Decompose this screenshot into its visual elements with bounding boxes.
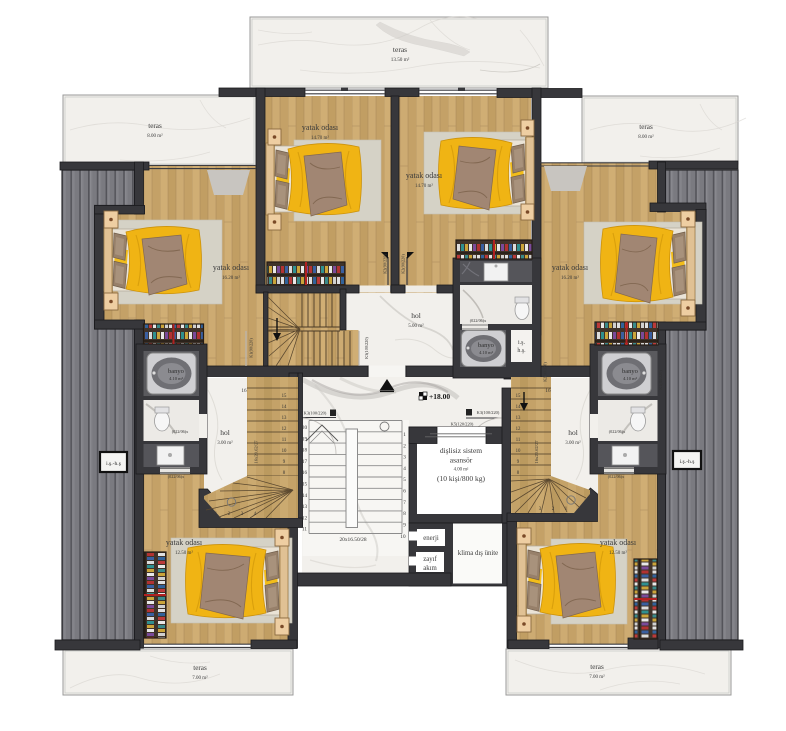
svg-text:3: 3 xyxy=(403,455,406,461)
svg-text:9: 9 xyxy=(403,522,406,528)
svg-text:K3(100/220): K3(100/220) xyxy=(304,411,327,416)
svg-text:+18.00: +18.00 xyxy=(429,392,450,401)
svg-text:dişlisiz sistem: dişlisiz sistem xyxy=(440,446,482,455)
svg-text:15: 15 xyxy=(516,394,521,399)
svg-text:K3(100/220): K3(100/220) xyxy=(477,410,500,415)
svg-text:12: 12 xyxy=(282,427,287,432)
svg-text:18: 18 xyxy=(302,448,308,454)
svg-text:K2(90/220): K2(90/220) xyxy=(401,254,406,274)
svg-text:5.00 m²: 5.00 m² xyxy=(408,323,424,329)
svg-text:yatak odası: yatak odası xyxy=(302,123,339,132)
svg-text:16: 16 xyxy=(241,388,247,394)
svg-text:13.50 m²: 13.50 m² xyxy=(391,57,410,63)
svg-text:teras: teras xyxy=(393,45,407,54)
svg-text:16: 16 xyxy=(545,388,551,394)
svg-text:h.ş.: h.ş. xyxy=(517,348,526,354)
svg-text:(022/06)x: (022/06)x xyxy=(168,474,185,479)
svg-text:15: 15 xyxy=(282,394,287,399)
svg-text:16: 16 xyxy=(302,470,308,476)
svg-text:1: 1 xyxy=(403,432,406,438)
svg-text:16x20.62/27: 16x20.62/27 xyxy=(254,440,259,464)
svg-text:14.70 m²: 14.70 m² xyxy=(311,135,329,141)
svg-text:13: 13 xyxy=(302,504,308,510)
svg-text:3.00 m²: 3.00 m² xyxy=(565,440,581,446)
svg-text:yatak odası: yatak odası xyxy=(406,171,443,180)
svg-text:K5(120/220): K5(120/220) xyxy=(451,422,474,427)
svg-text:14: 14 xyxy=(282,405,287,410)
svg-text:11: 11 xyxy=(302,527,307,533)
svg-text:2: 2 xyxy=(403,443,406,449)
svg-text:17: 17 xyxy=(302,459,308,465)
svg-text:akım: akım xyxy=(423,565,437,572)
svg-text:7.00 m²: 7.00 m² xyxy=(192,675,208,681)
svg-text:7.00 m²: 7.00 m² xyxy=(589,674,605,680)
svg-text:K1(90/220): K1(90/220) xyxy=(249,338,254,358)
svg-text:14.70 m²: 14.70 m² xyxy=(415,183,433,189)
svg-text:8: 8 xyxy=(403,511,406,517)
svg-text:K2(90/220): K2(90/220) xyxy=(543,362,548,382)
svg-text:5: 5 xyxy=(403,477,406,483)
svg-text:yatak odası: yatak odası xyxy=(213,263,250,272)
svg-text:12: 12 xyxy=(516,427,521,432)
svg-text:i.ş.-h.ş: i.ş.-h.ş xyxy=(680,459,695,465)
svg-text:yatak odası: yatak odası xyxy=(552,263,589,272)
svg-text:(022/06)x: (022/06)x xyxy=(172,429,189,434)
svg-text:hol: hol xyxy=(220,428,230,437)
svg-text:20x16.50/28: 20x16.50/28 xyxy=(339,537,366,543)
svg-text:K2(90/220): K2(90/220) xyxy=(383,254,388,274)
svg-text:yatak odası: yatak odası xyxy=(166,538,203,547)
svg-text:3.00 m²: 3.00 m² xyxy=(217,440,233,446)
svg-text:hol: hol xyxy=(411,311,421,320)
svg-text:yatak odası: yatak odası xyxy=(600,538,637,547)
svg-text:12.50 m²: 12.50 m² xyxy=(175,550,193,556)
svg-text:16.20 m²: 16.20 m² xyxy=(561,275,579,281)
svg-text:4.10 m²: 4.10 m² xyxy=(169,376,184,381)
svg-text:20: 20 xyxy=(302,425,308,431)
svg-text:7: 7 xyxy=(403,500,406,506)
svg-text:8.00 m²: 8.00 m² xyxy=(147,133,163,139)
svg-text:K1(80/220): K1(80/220) xyxy=(658,370,663,390)
svg-text:16x20.62/27: 16x20.62/27 xyxy=(534,440,539,464)
svg-text:(022/06)x: (022/06)x xyxy=(609,429,626,434)
svg-text:16.20 m²: 16.20 m² xyxy=(222,275,240,281)
svg-text:i.ş.: i.ş. xyxy=(518,340,526,346)
svg-text:4.10 m²: 4.10 m² xyxy=(479,350,494,355)
svg-text:teras: teras xyxy=(590,663,604,671)
svg-text:i.ş.-h.ş: i.ş.-h.ş xyxy=(106,461,121,467)
svg-text:teras: teras xyxy=(148,122,162,130)
svg-text:13: 13 xyxy=(282,416,287,421)
svg-text:11: 11 xyxy=(516,438,521,443)
svg-text:13: 13 xyxy=(516,416,521,421)
svg-text:10: 10 xyxy=(282,449,287,454)
svg-text:zayıf: zayıf xyxy=(423,556,437,563)
svg-text:teras: teras xyxy=(193,664,207,672)
svg-text:(10 kişi/800 kg): (10 kişi/800 kg) xyxy=(437,474,485,483)
svg-text:12: 12 xyxy=(302,515,308,521)
svg-text:19: 19 xyxy=(302,436,308,442)
svg-text:klima dış ünite: klima dış ünite xyxy=(458,550,498,557)
svg-text:K1(80/220): K1(80/220) xyxy=(136,370,141,390)
svg-text:8.00 m²: 8.00 m² xyxy=(638,134,654,140)
svg-text:4.10 m²: 4.10 m² xyxy=(623,376,638,381)
svg-text:10: 10 xyxy=(516,449,521,454)
svg-text:banyo: banyo xyxy=(478,342,494,349)
svg-text:6: 6 xyxy=(403,489,406,495)
svg-text:teras: teras xyxy=(639,123,653,131)
svg-text:11: 11 xyxy=(282,438,287,443)
svg-text:14: 14 xyxy=(516,405,521,410)
svg-text:K3(100/220): K3(100/220) xyxy=(364,337,369,359)
svg-text:4.00 m²: 4.00 m² xyxy=(454,467,469,473)
svg-text:(022/06)x: (022/06)x xyxy=(608,474,625,479)
svg-text:asansör: asansör xyxy=(450,456,473,465)
svg-text:banyo: banyo xyxy=(168,368,184,375)
svg-text:14: 14 xyxy=(302,493,308,499)
svg-text:banyo: banyo xyxy=(622,368,638,375)
svg-text:15: 15 xyxy=(302,482,308,488)
svg-text:12.50 m²: 12.50 m² xyxy=(609,550,627,556)
svg-text:10: 10 xyxy=(400,534,406,540)
svg-text:4: 4 xyxy=(403,466,406,472)
svg-text:hol: hol xyxy=(568,428,578,437)
svg-text:enerji: enerji xyxy=(423,535,439,542)
svg-text:(022/06)x: (022/06)x xyxy=(470,318,487,323)
